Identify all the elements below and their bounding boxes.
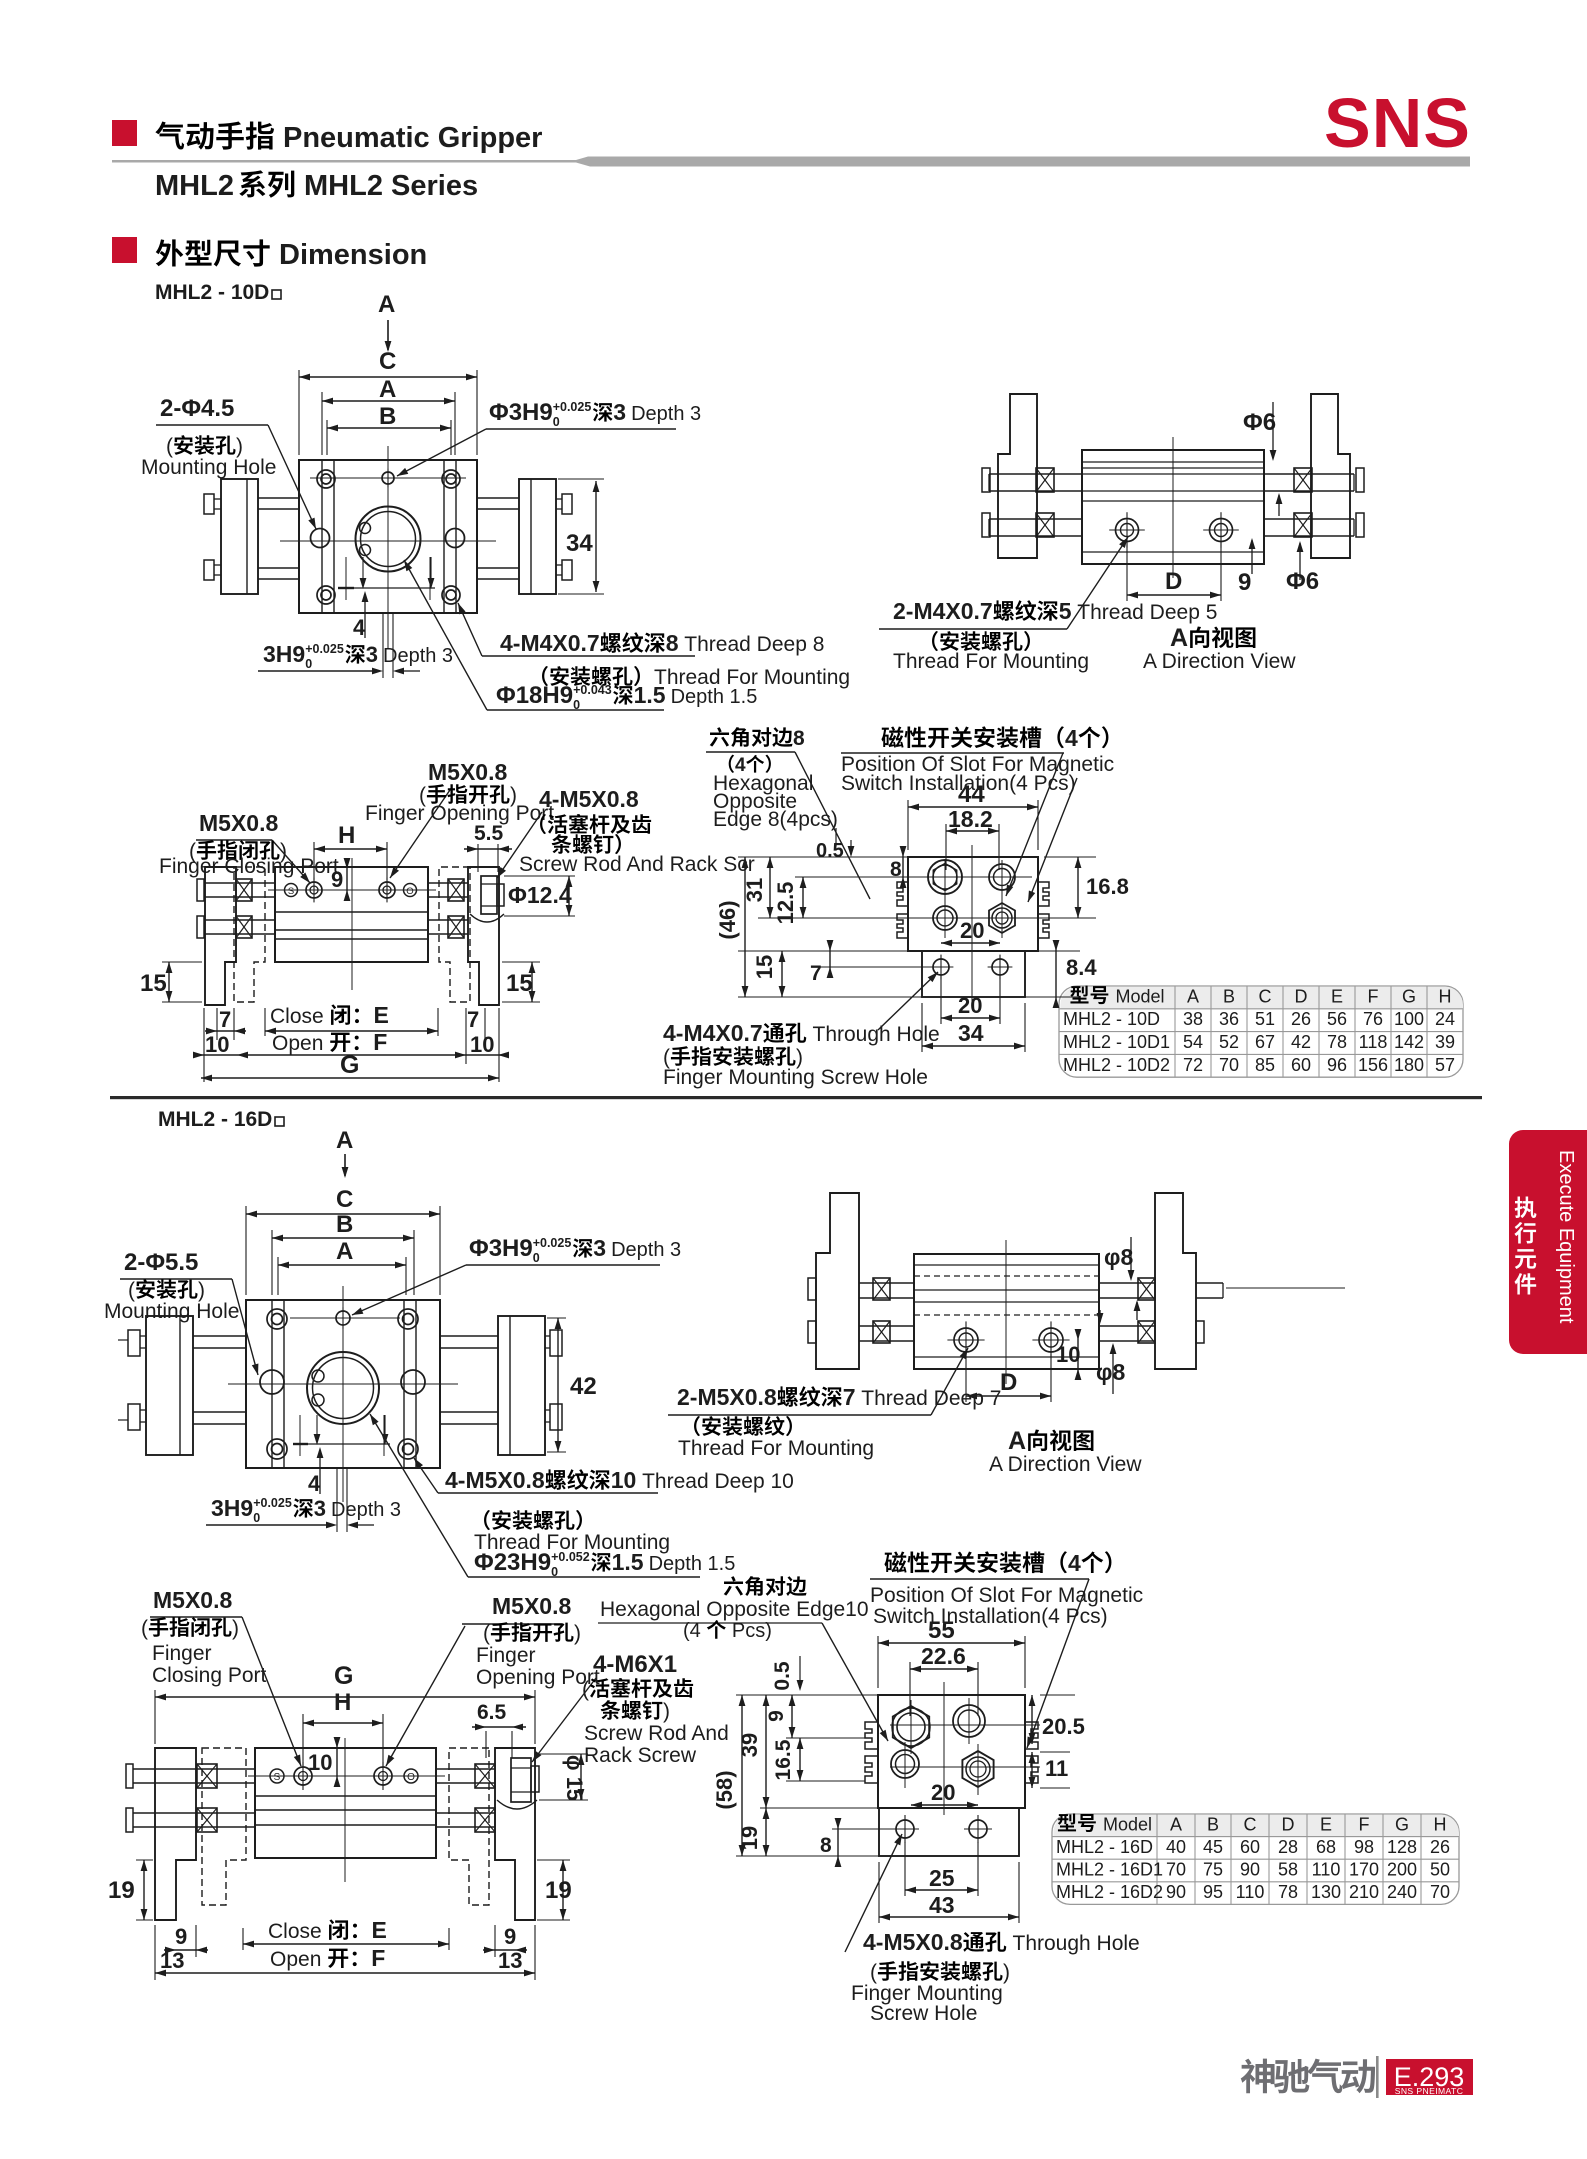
svg-text:210: 210 [1349,1882,1379,1902]
svg-text:39: 39 [737,1733,762,1757]
svg-text:Position Of Slot For Magnetic: Position Of Slot For Magnetic [870,1584,1143,1607]
svg-text:(4: (4 [683,1620,701,1642]
svg-text:6.5: 6.5 [477,1701,507,1724]
svg-text:3: 3 [593,1235,606,1261]
svg-text:(: ( [483,1622,490,1645]
svg-text:Depth 3: Depth 3 [631,403,701,425]
svg-text:G: G [1395,1814,1409,1834]
svg-text:Screw Rod And Rack Scr: Screw Rod And Rack Scr [519,853,755,876]
svg-text:16.8: 16.8 [1086,874,1129,899]
svg-text:4-M4X0.7: 4-M4X0.7 [663,1020,763,1046]
svg-text:Execute Equipment: Execute Equipment [1555,1150,1577,1324]
svg-text:): ) [232,1617,239,1640]
svg-text:A: A [336,1127,353,1154]
svg-text:4: 4 [353,615,366,640]
svg-text:Model: Model [1116,986,1165,1006]
svg-text:70: 70 [1430,1882,1450,1902]
svg-text:Thread Deep 5: Thread Deep 5 [1077,601,1217,624]
svg-text:57: 57 [1435,1055,1455,1075]
svg-text:Edge 8(4pcs): Edge 8(4pcs) [713,808,838,831]
svg-text:0: 0 [533,1251,540,1265]
svg-text:72: 72 [1183,1055,1203,1075]
svg-text:70: 70 [1219,1055,1239,1075]
svg-text:142: 142 [1394,1032,1424,1052]
svg-text:78: 78 [1278,1882,1298,1902]
svg-text:96: 96 [1327,1055,1347,1075]
svg-text:Finger: Finger [152,1642,212,1665]
svg-text:Thread Deep 10: Thread Deep 10 [642,1470,794,1493]
svg-text:110: 110 [1236,1882,1265,1902]
svg-text:Thread For Mounting: Thread For Mounting [678,1437,874,1460]
svg-text:F: F [373,1029,387,1055]
svg-text:C: C [336,1186,353,1213]
svg-text:H: H [334,1689,351,1716]
svg-text:56: 56 [1327,1009,1347,1029]
svg-text:7: 7 [810,962,822,985]
svg-text:68: 68 [1316,1837,1336,1857]
svg-text:1.5: 1.5 [612,1549,644,1575]
svg-text:MHL2 - 10D: MHL2 - 10D [1063,1009,1160,1029]
svg-text:MHL2 - 16D2: MHL2 - 16D2 [1056,1882,1163,1902]
svg-text:Dimension: Dimension [279,239,427,271]
svg-text:20: 20 [960,918,984,943]
svg-text:Model: Model [1103,1814,1152,1834]
svg-text:): ) [236,435,243,458]
svg-text:Through Hole: Through Hole [1013,1932,1140,1955]
svg-text:0: 0 [305,657,312,671]
svg-text:(58): (58) [712,1770,737,1809]
svg-text:10: 10 [470,1032,494,1057]
svg-text:0: 0 [553,415,560,429]
svg-text:Finger Closing Port: Finger Closing Port [159,855,339,878]
svg-text:7: 7 [467,1007,479,1032]
svg-text:+0.025: +0.025 [305,642,344,656]
svg-text:90: 90 [1166,1882,1186,1902]
svg-text:A: A [1187,986,1199,1006]
svg-text:Thread For Mounting: Thread For Mounting [893,650,1089,673]
svg-text:13: 13 [498,1948,522,1973]
svg-text:M5X0.8: M5X0.8 [428,759,507,785]
svg-text:15: 15 [140,970,167,997]
svg-text:15: 15 [506,970,533,997]
svg-text:Depth 3: Depth 3 [611,1239,681,1261]
svg-text:12.5: 12.5 [773,882,798,925]
svg-text:F: F [1359,1814,1370,1834]
svg-text:Rack Screw: Rack Screw [584,1744,697,1767]
svg-text:24: 24 [1435,1009,1455,1029]
svg-text:128: 128 [1387,1837,1417,1857]
svg-text:Φ3H9: Φ3H9 [469,1235,533,1262]
svg-text:): ) [574,1622,581,1645]
svg-text:5.5: 5.5 [474,822,504,845]
svg-text:28: 28 [1278,1837,1298,1857]
svg-text:85: 85 [1255,1055,1275,1075]
svg-text:): ) [663,1700,670,1723]
svg-text:Pcs): Pcs) [732,1620,772,1642]
svg-text:F: F [371,1945,385,1971]
svg-text:Depth 3: Depth 3 [331,1499,401,1521]
svg-text:0: 0 [253,1511,260,1525]
svg-text:25: 25 [929,1865,955,1891]
svg-text:90: 90 [1240,1860,1260,1880]
svg-text:φ8: φ8 [1096,1359,1125,1385]
svg-text:Φ18H9: Φ18H9 [496,682,573,709]
svg-text:D: D [1282,1814,1295,1834]
svg-text:+0.025: +0.025 [253,1496,292,1510]
svg-text:34: 34 [958,1020,984,1046]
svg-text:156: 156 [1358,1055,1388,1075]
svg-text:75: 75 [1203,1860,1223,1880]
svg-text:13: 13 [160,1948,184,1973]
svg-text:20: 20 [931,1780,955,1805]
svg-text:Hexagonal Opposite Edge10: Hexagonal Opposite Edge10 [600,1598,869,1621]
svg-text:C: C [1259,986,1272,1006]
svg-text:170: 170 [1349,1860,1379,1880]
svg-text:Thread Deep 8: Thread Deep 8 [684,633,824,656]
svg-text:Φ6: Φ6 [1286,568,1319,595]
svg-text:34: 34 [566,530,593,557]
svg-text:38: 38 [1183,1009,1203,1029]
svg-text:Screw Rod And: Screw Rod And [584,1722,729,1745]
svg-text:67: 67 [1255,1032,1275,1052]
svg-text:S: S [274,1772,281,1783]
svg-text:Finger Opening Port: Finger Opening Port [365,802,554,825]
svg-text:60: 60 [1240,1837,1260,1857]
svg-text:MHL2 - 16D: MHL2 - 16D [1056,1837,1153,1857]
svg-text:78: 78 [1327,1032,1347,1052]
svg-text:φ8: φ8 [1104,1244,1133,1270]
svg-text:(: ( [141,1617,148,1640]
svg-text:Close: Close [268,1920,322,1943]
svg-text:2-M5X0.8: 2-M5X0.8 [677,1384,777,1410]
svg-text:+0.025: +0.025 [553,400,592,414]
svg-text:42: 42 [1291,1032,1311,1052]
svg-text:(: ( [870,1961,877,1984]
svg-text:C: C [1244,1814,1257,1834]
svg-text:42: 42 [570,1373,597,1400]
svg-text:50: 50 [1430,1860,1450,1880]
svg-text:10: 10 [1056,1342,1080,1367]
svg-text:Depth 1.5: Depth 1.5 [671,686,758,708]
svg-text:(: ( [128,1279,135,1302]
svg-text:Switch Installation(4 Pcs): Switch Installation(4 Pcs) [873,1605,1108,1628]
svg-text:43: 43 [929,1892,955,1918]
svg-text:S: S [288,886,294,897]
svg-text:MHL2 - 16D: MHL2 - 16D [158,1108,272,1131]
svg-text:4-M4X0.7: 4-M4X0.7 [500,630,600,656]
svg-text:3: 3 [366,642,378,667]
svg-text:9: 9 [765,1710,788,1722]
svg-text:M5X0.8: M5X0.8 [199,810,278,836]
svg-text:76: 76 [1363,1009,1383,1029]
svg-text:A: A [1170,1814,1182,1834]
svg-text:180: 180 [1394,1055,1424,1075]
svg-text:2-Φ5.5: 2-Φ5.5 [124,1249,198,1276]
svg-text:4-M5X0.8: 4-M5X0.8 [863,1929,963,1955]
svg-text:4-M5X0.8: 4-M5X0.8 [445,1467,545,1493]
svg-text:20: 20 [958,993,982,1018]
svg-text:MHL2 - 10D1: MHL2 - 10D1 [1063,1032,1170,1052]
svg-text:Closing Port: Closing Port [152,1664,267,1687]
svg-text:E: E [372,1917,387,1943]
svg-text:MHL2: MHL2 [155,170,234,202]
svg-text:D: D [1000,1369,1017,1396]
svg-text:118: 118 [1359,1032,1388,1052]
svg-text:D: D [1295,986,1308,1006]
svg-text:O: O [407,1772,415,1783]
svg-text:10: 10 [611,1467,637,1493]
svg-text:A: A [1170,624,1188,652]
svg-text:11: 11 [1045,1756,1068,1781]
svg-text:Open: Open [272,1032,323,1055]
svg-text:70: 70 [1166,1860,1186,1880]
svg-text:19: 19 [108,1877,135,1904]
svg-text:8: 8 [820,1834,832,1857]
svg-text:Φ6: Φ6 [1243,409,1276,436]
svg-text:H: H [338,822,355,849]
svg-text:200: 200 [1387,1860,1417,1880]
svg-text:D: D [1165,568,1182,595]
svg-text:36: 36 [1219,1009,1239,1029]
svg-text:55: 55 [928,1617,955,1644]
svg-text:M5X0.8: M5X0.8 [492,1593,571,1619]
svg-text:A Direction View: A Direction View [989,1453,1142,1476]
svg-text:Finger Mounting Screw Hole: Finger Mounting Screw Hole [663,1066,928,1089]
svg-text:40: 40 [1166,1837,1186,1857]
svg-text:44: 44 [958,781,985,808]
svg-text:3H9: 3H9 [211,1495,253,1521]
svg-text:5: 5 [1059,598,1072,624]
svg-text:26: 26 [1291,1009,1311,1029]
svg-text:G: G [340,1051,359,1079]
svg-text:G: G [1402,986,1416,1006]
svg-text:Φ23H9: Φ23H9 [474,1549,551,1576]
svg-text:4: 4 [1065,725,1078,751]
svg-text:58: 58 [1278,1860,1298,1880]
svg-text:Screw Hole: Screw Hole [870,2002,977,2025]
svg-text:A: A [336,1238,353,1265]
svg-text:Finger: Finger [476,1644,536,1667]
svg-text:H: H [1439,986,1452,1006]
svg-text:9: 9 [504,1924,516,1949]
svg-text:3: 3 [613,399,626,425]
svg-text:Mounting Hole: Mounting Hole [104,1300,239,1323]
svg-text:A: A [379,376,396,403]
svg-text:240: 240 [1387,1882,1417,1902]
svg-text:4-M5X0.8: 4-M5X0.8 [539,786,639,812]
svg-text:3: 3 [314,1496,326,1521]
svg-text:M5X0.8: M5X0.8 [153,1587,232,1613]
svg-text:Depth 1.5: Depth 1.5 [649,1553,736,1575]
svg-text:3H9: 3H9 [263,641,305,667]
svg-text:B: B [1223,986,1235,1006]
svg-text:8: 8 [793,727,805,750]
svg-text:1.5: 1.5 [634,682,666,708]
svg-text:16.5: 16.5 [772,1739,795,1780]
svg-text:+0.052: +0.052 [551,1550,590,1564]
svg-text:54: 54 [1183,1032,1203,1052]
svg-text:Φ12.4: Φ12.4 [508,882,572,908]
svg-text:15: 15 [752,955,777,979]
svg-text:SNS PNEIMATC: SNS PNEIMATC [1395,2086,1464,2096]
svg-text:+0.025: +0.025 [533,1236,572,1250]
svg-text:B: B [336,1211,353,1238]
svg-text:20.5: 20.5 [1042,1714,1085,1739]
svg-text:7: 7 [843,1384,856,1410]
svg-text:O: O [406,886,413,897]
svg-text:Thread Deep 7: Thread Deep 7 [861,1387,1001,1410]
svg-text:G: G [334,1662,353,1690]
svg-text:B: B [379,403,396,430]
svg-text:Φ3H9: Φ3H9 [489,399,553,426]
svg-text:52: 52 [1219,1032,1239,1052]
svg-text:E: E [1320,1814,1332,1834]
svg-text:0.5: 0.5 [771,1661,794,1691]
svg-text:19: 19 [737,1826,762,1850]
svg-text:31: 31 [742,878,767,902]
svg-text:130: 130 [1311,1882,1341,1902]
svg-text:A Direction View: A Direction View [1143,650,1296,673]
svg-text:(: ( [582,1678,589,1701]
svg-text:8.4: 8.4 [1066,955,1097,980]
svg-text:F: F [1368,986,1379,1006]
svg-text:60: 60 [1291,1055,1311,1075]
svg-text:9: 9 [1238,569,1251,596]
svg-text:Open: Open [270,1948,321,1971]
svg-text:Pneumatic Gripper: Pneumatic Gripper [283,122,542,154]
svg-text:B: B [1207,1814,1219,1834]
svg-text:SNS: SNS [1324,84,1471,162]
svg-text:98: 98 [1354,1837,1374,1857]
svg-text:45: 45 [1203,1837,1223,1857]
svg-text:MHL2 - 16D1: MHL2 - 16D1 [1056,1860,1163,1880]
svg-text:100: 100 [1394,1009,1424,1029]
svg-text:18.2: 18.2 [948,806,993,832]
svg-text:26: 26 [1430,1837,1450,1857]
svg-text:Through Hole: Through Hole [813,1023,940,1046]
svg-text:8: 8 [666,630,679,656]
svg-text:22.6: 22.6 [921,1643,966,1669]
svg-text:19: 19 [545,1877,572,1904]
svg-text:10: 10 [308,1750,332,1775]
svg-text:9: 9 [175,1924,187,1949]
svg-text:MHL2 - 10D2: MHL2 - 10D2 [1063,1055,1170,1075]
svg-text:MHL2 Series: MHL2 Series [304,170,478,202]
svg-text:7: 7 [219,1007,231,1032]
svg-text:Close: Close [270,1005,324,1028]
svg-text:0.5: 0.5 [816,840,844,862]
svg-text:): ) [198,1279,205,1302]
svg-text:51: 51 [1255,1009,1275,1029]
svg-text:Depth 3: Depth 3 [383,645,453,667]
svg-text:A: A [378,291,395,318]
svg-text:H: H [1434,1814,1447,1834]
svg-text:(46): (46) [715,900,740,939]
svg-text:4-M6X1: 4-M6X1 [593,1651,677,1678]
svg-text:+0.043: +0.043 [573,683,612,697]
svg-text:4: 4 [1068,1550,1081,1576]
svg-text:MHL2 - 10D: MHL2 - 10D [155,281,269,304]
svg-text:E: E [374,1002,389,1028]
svg-text:8: 8 [890,858,902,881]
svg-text:): ) [1003,1961,1010,1984]
svg-text:110: 110 [1312,1860,1341,1880]
svg-text:A: A [1008,1427,1026,1455]
svg-text:4: 4 [308,1471,321,1496]
svg-text:2-Φ4.5: 2-Φ4.5 [160,395,234,422]
svg-text:2-M4X0.7: 2-M4X0.7 [893,598,993,624]
svg-text:C: C [379,348,396,375]
svg-text:95: 95 [1203,1882,1223,1902]
svg-text:Mounting Hole: Mounting Hole [141,456,276,479]
svg-text:E: E [1331,986,1343,1006]
svg-text:(: ( [166,435,173,458]
svg-text:39: 39 [1435,1032,1455,1052]
